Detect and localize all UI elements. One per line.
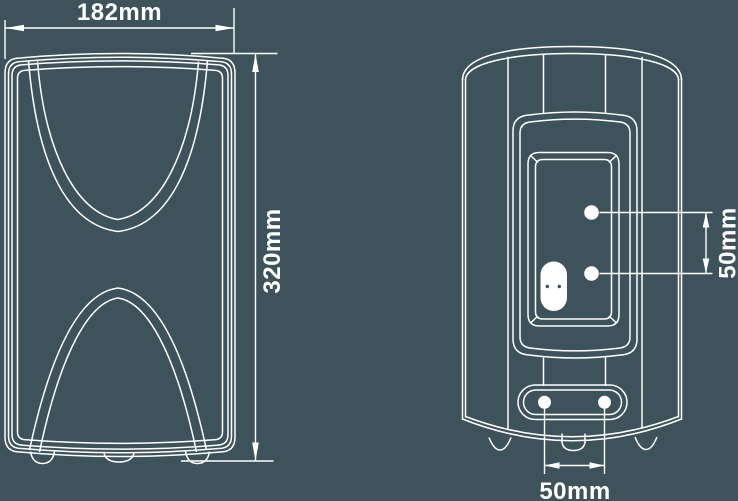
back-view-drawing	[463, 47, 682, 451]
bracket-hole-right	[598, 396, 611, 409]
rear-keyhole-top	[584, 205, 599, 220]
dimensional-drawing-canvas: 182mm 320mm 50mm 50mm	[0, 0, 738, 501]
speakon-pin-right	[558, 285, 561, 288]
front-arch-curve-outer	[30, 288, 207, 450]
speaker-dimension-diagram: 182mm 320mm 50mm 50mm	[0, 0, 738, 501]
arrowhead-left	[545, 462, 560, 468]
front-waveguide-curve-inner	[38, 62, 199, 220]
arrowhead-down	[703, 259, 710, 274]
rear-keyhole-spacing-label: 50mm	[715, 207, 738, 278]
front-view-drawing	[5, 54, 235, 464]
front-waveguide-curve-outer	[29, 61, 208, 232]
back-foot-right	[635, 437, 657, 450]
dimension-front-height: 320mm	[181, 54, 286, 462]
arrowhead-right	[590, 462, 605, 468]
bracket-hole-spacing-label: 50mm	[539, 478, 610, 501]
back-top-arc-inner	[466, 54, 679, 81]
front-width-label: 182mm	[77, 0, 162, 26]
dimension-rear-keyhole-spacing: 50mm	[600, 207, 738, 278]
dimension-front-width: 182mm	[5, 0, 234, 59]
bracket-hole-left	[538, 396, 551, 409]
front-height-label: 320mm	[259, 208, 286, 293]
dimension-bracket-hole-spacing: 50mm	[539, 409, 610, 501]
back-top-arc-outer	[463, 47, 682, 81]
arrowhead-up	[703, 213, 710, 228]
rear-keyhole-bottom	[584, 266, 599, 281]
arrowhead-up	[252, 54, 259, 73]
arrowhead-down	[252, 443, 259, 462]
speakon-pin-left	[546, 285, 549, 288]
arrowhead-right	[216, 25, 235, 32]
speakon-connector	[541, 262, 568, 312]
front-arch-curve-inner	[40, 298, 197, 452]
arrowhead-left	[6, 25, 25, 32]
front-bezel-line-2	[9, 57, 232, 453]
front-baffle-edge	[18, 67, 223, 444]
front-center-bump	[104, 454, 134, 463]
back-foot-left	[489, 438, 511, 451]
